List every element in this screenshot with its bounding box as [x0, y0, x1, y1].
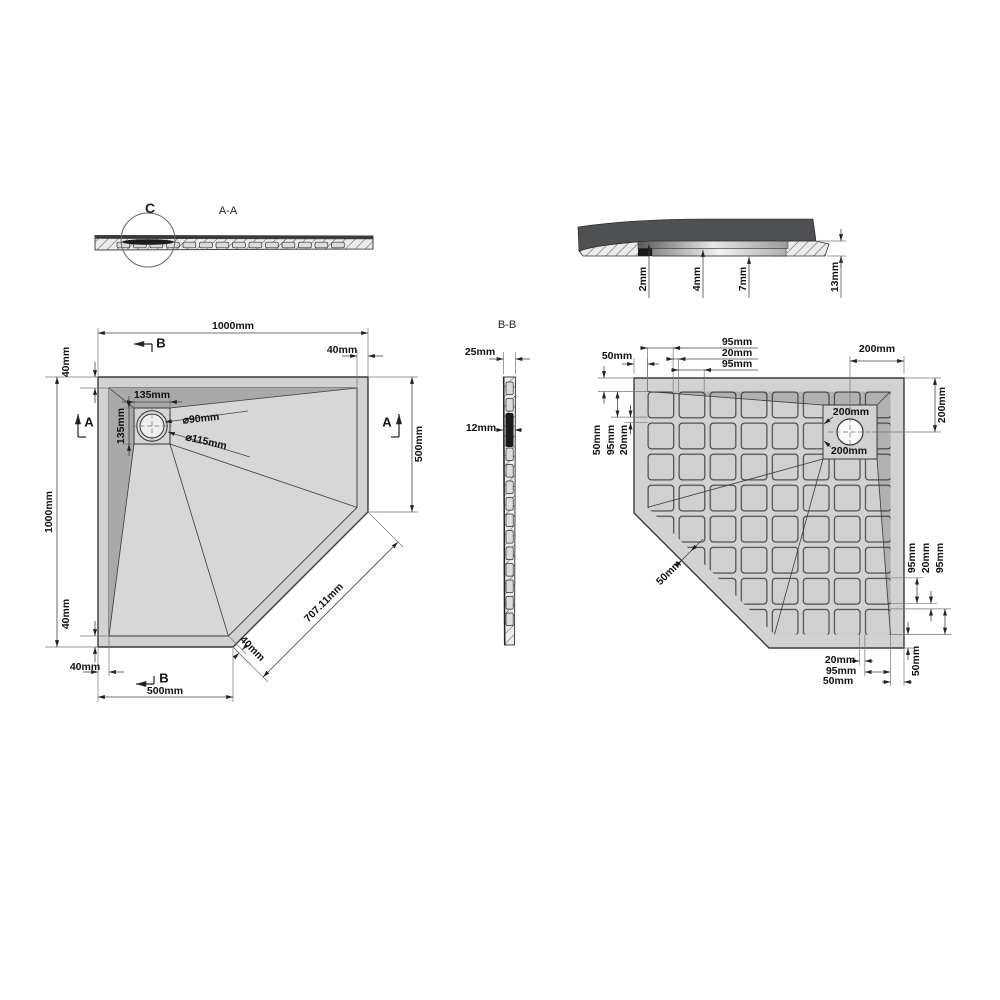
- bottom-dim-gap-bottom: 20mm: [825, 655, 855, 666]
- bottom-dim-gap1: 20mm: [722, 348, 752, 359]
- bottom-dim-drain-x: 200mm: [859, 344, 895, 355]
- detail-c-view: [578, 219, 846, 298]
- bottom-dim-row-right-95a: 95mm: [907, 543, 918, 573]
- bottom-dim-col1: 95mm: [722, 337, 752, 348]
- plan-dim-width: 1000mm: [212, 321, 254, 332]
- plan-dim-rim-bottom-left-h: 40mm: [70, 662, 100, 673]
- detailc-dim-13mm: 13mm: [830, 262, 841, 292]
- plan-section-a-right: A: [382, 416, 391, 429]
- plan-section-b-top: B: [156, 337, 165, 350]
- bottom-dim-drain-y: 200mm: [937, 387, 948, 423]
- plan-dim-bottom-500: 500mm: [147, 686, 183, 697]
- view-title-bb: B-B: [498, 319, 516, 331]
- bottom-dim-drain-sq-bottom: 200mm: [831, 446, 867, 457]
- bottom-dim-row-left-20: 20mm: [619, 425, 630, 455]
- bb-dim-12mm: 12mm: [466, 423, 496, 434]
- bottom-dim-row-right-95b: 95mm: [935, 543, 946, 573]
- bottom-dim-row-left-50: 50mm: [592, 425, 603, 455]
- bottom-dim-row-left-95: 95mm: [606, 425, 617, 455]
- section-bb-view: [489, 352, 530, 645]
- section-aa-view: [95, 213, 373, 267]
- bottom-dim-col2: 95mm: [722, 359, 752, 370]
- bottom-dim-margin-bottom-h: 50mm: [823, 676, 853, 687]
- aa-drain-recess: [122, 239, 174, 245]
- drawing-canvas: [0, 0, 1000, 1000]
- plan-dim-right-500: 500mm: [414, 426, 425, 462]
- technical-drawing-page: C A-A B-B 2mm4mm7mm13mm25mm12mm1000mmB40…: [0, 0, 1000, 1000]
- plan-section-a-left: A: [84, 416, 93, 429]
- detailc-dim-4mm: 4mm: [692, 267, 703, 292]
- plan-dim-height: 1000mm: [44, 491, 55, 533]
- plan-dim-rim-top-right: 40mm: [327, 345, 357, 356]
- bottom-dim-margin-br-v: 50mm: [911, 646, 922, 676]
- plan-view: [45, 328, 418, 702]
- plan-dim-rim-top-left: 40mm: [61, 347, 72, 377]
- plan-dim-drain-square-w: 135mm: [134, 390, 170, 401]
- view-title-aa: A-A: [219, 205, 237, 217]
- detailc-dim-7mm: 7mm: [738, 267, 749, 292]
- plan-section-b-bottom: B: [159, 672, 168, 685]
- bottom-dim-margin-top-left: 50mm: [602, 351, 632, 362]
- bottom-dim-drain-sq-top: 200mm: [833, 407, 869, 418]
- detail-c-marker: C: [145, 200, 155, 216]
- plan-dim-rim-bottom-left-v: 40mm: [61, 599, 72, 629]
- bb-drain-recess: [506, 413, 514, 447]
- plan-dim-drain-square-h: 135mm: [116, 408, 127, 444]
- bottom-view: [598, 348, 951, 686]
- detailc-dim-2mm: 2mm: [638, 267, 649, 292]
- bottom-dim-row-right-20: 20mm: [921, 543, 932, 573]
- bb-dim-25mm: 25mm: [465, 347, 495, 358]
